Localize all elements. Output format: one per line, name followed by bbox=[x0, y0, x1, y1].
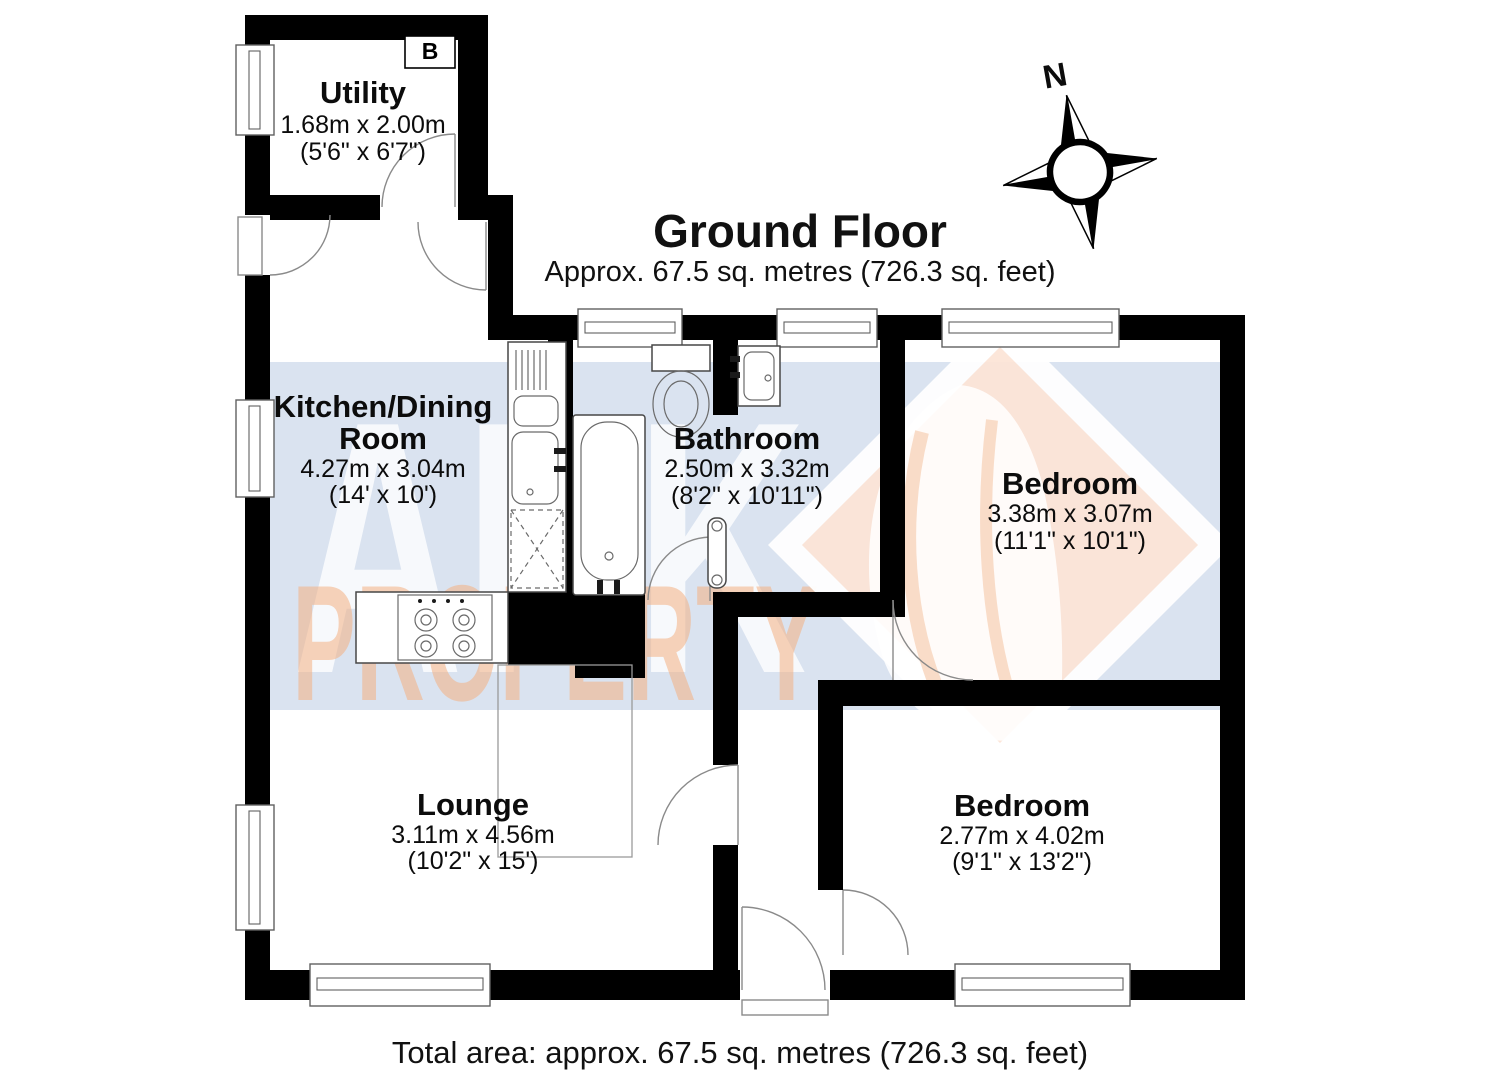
page-subtitle: Approx. 67.5 sq. metres (726.3 sq. feet) bbox=[545, 256, 1056, 288]
chimney-breast bbox=[508, 592, 645, 665]
floor-plan: ARK PROPERTY bbox=[0, 0, 1485, 1080]
room-label-bedroom1: Bedroom 3.38m x 3.07m (11'1" x 10'1") bbox=[987, 466, 1152, 555]
svg-text:(10'2" x 15'): (10'2" x 15') bbox=[408, 847, 539, 875]
svg-text:2.50m x 3.32m: 2.50m x 3.32m bbox=[664, 455, 829, 483]
lobby-door bbox=[418, 222, 486, 290]
window-kitchen-left bbox=[236, 400, 274, 497]
svg-text:Bathroom: Bathroom bbox=[674, 421, 820, 456]
page-title: Ground Floor bbox=[653, 205, 947, 257]
svg-text:4.27m x 3.04m: 4.27m x 3.04m bbox=[300, 455, 465, 483]
room-label-utility: Utility 1.68m x 2.00m (5'6" x 6'7") bbox=[280, 75, 445, 166]
compass-north-label: N bbox=[1040, 55, 1070, 96]
svg-text:Utility: Utility bbox=[320, 75, 407, 110]
window-bedroom2-bottom bbox=[955, 964, 1130, 1006]
kitchen-sink-unit bbox=[508, 342, 566, 592]
svg-text:Kitchen/Dining: Kitchen/Dining bbox=[274, 389, 493, 424]
window-bedroom1-top bbox=[942, 309, 1119, 347]
hob bbox=[356, 592, 508, 663]
svg-text:Room: Room bbox=[339, 421, 427, 456]
total-area-text: Total area: approx. 67.5 sq. metres (726… bbox=[392, 1035, 1088, 1070]
floor-plan-page: ARK PROPERTY bbox=[0, 0, 1485, 1080]
svg-text:3.11m x 4.56m: 3.11m x 4.56m bbox=[391, 821, 555, 849]
bath bbox=[573, 415, 645, 595]
lounge-door bbox=[658, 765, 738, 845]
side-entrance-door bbox=[238, 215, 330, 275]
svg-text:(9'1" x 13'2"): (9'1" x 13'2") bbox=[952, 848, 1092, 876]
svg-text:Lounge: Lounge bbox=[417, 787, 529, 822]
svg-text:2.77m x 4.02m: 2.77m x 4.02m bbox=[939, 822, 1104, 850]
svg-text:Bedroom: Bedroom bbox=[954, 788, 1090, 823]
window-lounge-left bbox=[236, 805, 274, 930]
bedroom2-door bbox=[843, 890, 908, 955]
svg-text:(8'2" x 10'11"): (8'2" x 10'11") bbox=[671, 482, 823, 510]
svg-text:(11'1" x 10'1"): (11'1" x 10'1") bbox=[994, 527, 1146, 555]
svg-text:1.68m x 2.00m: 1.68m x 2.00m bbox=[280, 111, 445, 139]
window-utility-left bbox=[236, 45, 274, 135]
wash-basin bbox=[730, 346, 780, 406]
room-label-bedroom2: Bedroom 2.77m x 4.02m (9'1" x 13'2") bbox=[939, 788, 1104, 876]
svg-text:Bedroom: Bedroom bbox=[1002, 466, 1138, 501]
compass-rose-icon: N bbox=[983, 42, 1171, 262]
window-hall-top bbox=[777, 309, 877, 347]
towel-radiator bbox=[708, 518, 726, 588]
room-label-lounge: Lounge 3.11m x 4.56m (10'2" x 15') bbox=[391, 787, 555, 875]
front-door bbox=[742, 907, 828, 1015]
svg-text:3.38m x 3.07m: 3.38m x 3.07m bbox=[987, 500, 1152, 528]
boiler-box: B bbox=[405, 36, 455, 68]
svg-text:(14' x 10'): (14' x 10') bbox=[329, 481, 437, 509]
svg-text:(5'6" x 6'7"): (5'6" x 6'7") bbox=[300, 138, 426, 166]
window-lounge-bottom bbox=[310, 964, 490, 1006]
window-bathroom-top bbox=[578, 309, 682, 347]
boiler-label: B bbox=[422, 38, 439, 64]
room-label-bathroom: Bathroom 2.50m x 3.32m (8'2" x 10'11") bbox=[664, 421, 829, 510]
